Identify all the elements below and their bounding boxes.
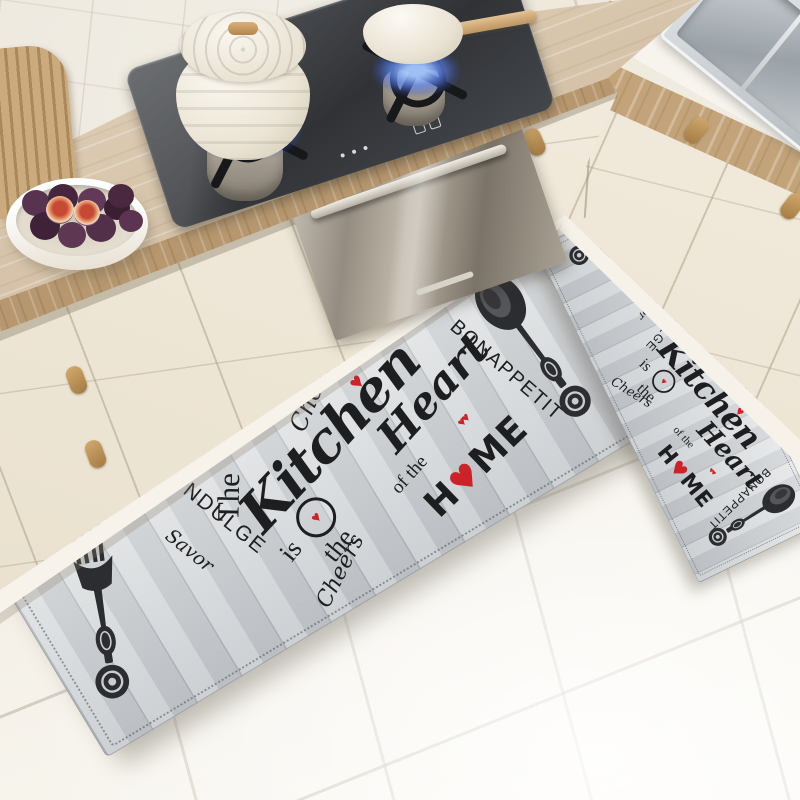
loose-fig	[119, 210, 143, 232]
fig	[58, 222, 86, 248]
saucepan	[363, 0, 543, 70]
cooktop-control-dot	[352, 149, 357, 154]
pot-lid-knob	[228, 22, 258, 35]
heart-icon: ♥	[307, 508, 326, 526]
kitchen-scene: Savor INDULGE The Kitchen ♥ is the Cheer…	[0, 0, 800, 800]
saucepan-body	[363, 4, 463, 64]
pot-lid	[180, 10, 306, 82]
heart-icon: ♥	[658, 376, 669, 386]
double-hearts-icon: ♥♥	[454, 412, 471, 429]
cut-fig	[74, 200, 100, 226]
loose-fig	[108, 184, 134, 208]
cooktop-control-dot	[340, 153, 345, 158]
mat-word-is: is	[275, 535, 307, 566]
cooktop-control-dot	[363, 145, 368, 150]
cut-fig	[46, 196, 74, 224]
double-hearts-icon: ♥♥	[707, 466, 717, 476]
mat-word-savor: Savor	[162, 526, 217, 576]
mat-word-is: is	[637, 356, 655, 375]
dutch-oven-pot	[176, 10, 310, 162]
saucepan-handle	[454, 9, 537, 36]
